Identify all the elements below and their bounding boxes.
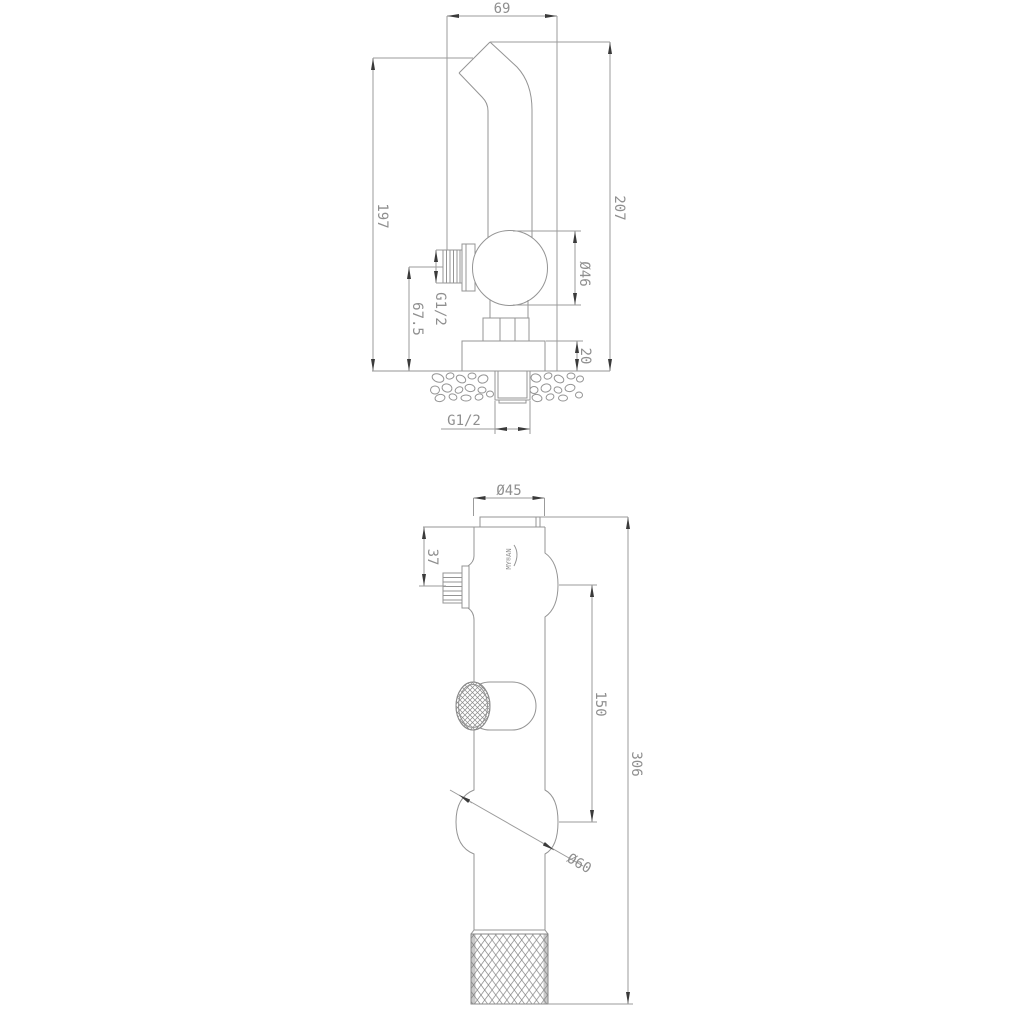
valve-spout-outline [459, 42, 532, 239]
dim-bulge-diameter: Ø60 [450, 790, 594, 877]
dim-bump-spacing: 150 [559, 585, 608, 822]
dim-head-diameter: Ø45 [474, 483, 545, 516]
dim-text-69: 69 [494, 1, 511, 17]
dim-text-o60: Ø60 [564, 851, 594, 878]
logo-swoosh-icon [514, 545, 517, 566]
sprayer-trigger [456, 682, 536, 730]
technical-drawing: 69 207 197 Ø46 G1/2 [0, 0, 1024, 1024]
dim-text-g12-inlet: G1/2 [432, 292, 448, 326]
brand-logo-text: MY®AN [505, 548, 513, 569]
sprayer-knurled-grip [471, 930, 548, 1004]
dim-inlet-thread: G1/2 [432, 250, 448, 326]
dim-plate-thickness: 20 [546, 341, 593, 371]
sprayer-head-cap [423, 517, 545, 527]
dim-text-o45: Ø45 [496, 483, 521, 499]
dim-text-150: 150 [592, 691, 608, 716]
dim-text-g12-wall: G1/2 [447, 413, 481, 429]
trigger-knob-icon [456, 682, 490, 730]
valve-base [462, 300, 545, 371]
dim-text-197: 197 [374, 203, 390, 228]
view-hand-sprayer: MY®AN Ø45 37 [419, 483, 644, 1004]
sprayer-inlet-thread [443, 566, 469, 608]
valve-escutcheon-plate [462, 341, 545, 371]
dim-text-37: 37 [424, 549, 440, 566]
dim-text-20: 20 [577, 348, 593, 365]
dim-wall-thread: G1/2 [441, 401, 530, 434]
wall-connection-pipe [495, 371, 530, 403]
view-wall-valve: 69 207 197 Ø46 G1/2 [372, 1, 627, 434]
dim-spout-width: 69 [447, 1, 557, 371]
dim-text-67-5: 67.5 [409, 302, 425, 336]
valve-ball-body [473, 231, 548, 306]
valve-inlet-thread [443, 244, 475, 291]
drawing-canvas: 69 207 197 Ø46 G1/2 [0, 0, 1024, 1024]
dim-inlet-offset: 37 [419, 527, 446, 586]
dim-text-o46: Ø46 [576, 261, 592, 286]
brand-logo: MY®AN [505, 545, 517, 570]
dim-text-207: 207 [611, 195, 627, 220]
dim-text-306: 306 [628, 751, 644, 776]
valve-hex-nut [483, 318, 529, 341]
